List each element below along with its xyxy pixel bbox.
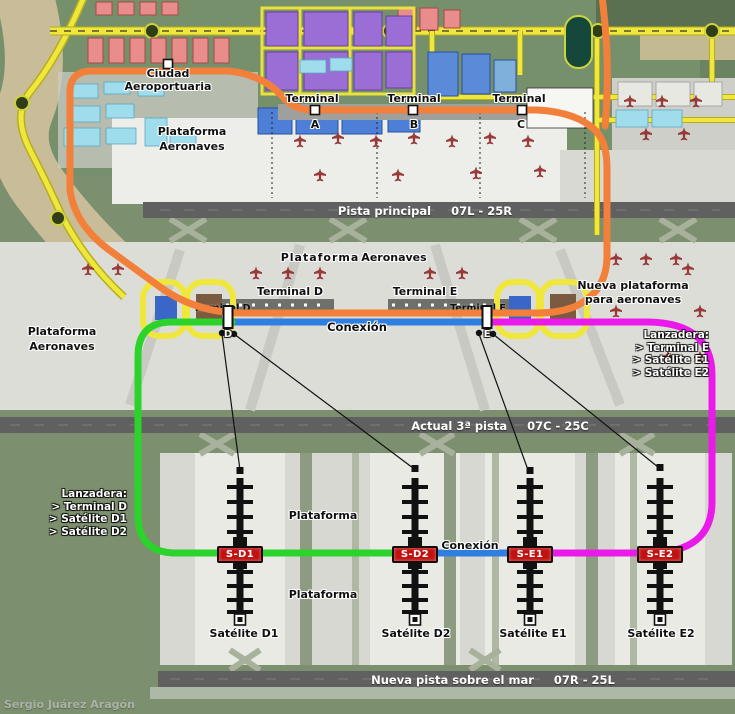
- satelite-e1-label: Satélite E1: [499, 627, 566, 640]
- lanzadera-right-label: Lanzadera: > Terminal E > Satélite E1 > …: [632, 329, 709, 379]
- ciudad-line2: Aeroportuaria: [125, 80, 212, 93]
- runway-3-name: Nueva pista sobre el mar: [371, 673, 534, 687]
- terminal-b-letter: B: [410, 118, 418, 131]
- apron-abc-label: Plataforma Aeronaves: [158, 124, 227, 154]
- apron-abc-line1: Plataforma: [158, 124, 227, 139]
- nueva-plataforma-label: Nueva plataforma para aeronaves: [577, 279, 688, 307]
- runway-1-name: Pista principal: [338, 204, 431, 218]
- runway-2-name: Actual 3ª pista: [411, 419, 507, 433]
- runway-1-label: Pista principal 07L - 25R: [338, 204, 512, 218]
- lanzadera-right-item2: > Satélite E1: [632, 354, 709, 367]
- terminal-d-label: Terminal D: [257, 285, 323, 298]
- nueva-plataforma-line2: para aeronaves: [577, 293, 688, 307]
- terminal-a-letter: A: [311, 118, 320, 131]
- lanzadera-right-item1: > Terminal E: [632, 342, 709, 355]
- lanzadera-left-item2: > Satélite D1: [49, 513, 127, 526]
- lanzadera-left-item3: > Satélite D2: [49, 526, 127, 539]
- satellite-connectors: [222, 334, 658, 470]
- badge-s-d1: S-D1: [217, 546, 263, 563]
- airport-plan-map: Terminal D Terminal E: [0, 0, 735, 714]
- conexion-bottom-label: Conexión: [441, 539, 498, 552]
- apron-abc-line2: Aeronaves: [158, 139, 227, 154]
- mid-aeronaves-label: Aeronaves: [361, 251, 426, 264]
- ciudad-line1: Ciudad: [125, 67, 212, 80]
- nueva-plataforma-line1: Nueva plataforma: [577, 279, 688, 293]
- runway-2-label: Actual 3ª pista 07C - 25C: [411, 419, 589, 433]
- terminal-c-letter: C: [517, 118, 525, 131]
- terminal-e-label: Terminal E: [393, 285, 458, 298]
- terminal-a-label: Terminal: [285, 92, 338, 105]
- satelite-e2-label: Satélite E2: [627, 627, 694, 640]
- satelite-d2-label: Satélite D2: [382, 627, 451, 640]
- runway-3-designation: 07R - 25L: [554, 673, 615, 687]
- badge-s-e1: S-E1: [507, 546, 553, 563]
- author-credit: Sergio Juárez Aragón: [4, 698, 135, 711]
- station-e-letter: E: [484, 329, 491, 340]
- badge-s-d2: S-D2: [392, 546, 438, 563]
- satelite-d1-label: Satélite D1: [210, 627, 279, 640]
- route-overlay: [0, 0, 735, 714]
- terminal-c-label: Terminal: [492, 92, 545, 105]
- route-green-lanzadera-d: [138, 322, 416, 553]
- runway-3-label: Nueva pista sobre el mar 07R - 25L: [371, 673, 615, 687]
- lanzadera-right-item3: > Satélite E2: [632, 367, 709, 380]
- lanzadera-right-title: Lanzadera:: [632, 329, 709, 342]
- badge-s-e2: S-E2: [637, 546, 683, 563]
- pier-top-markers: [237, 464, 664, 474]
- satellite-plataforma-top-label: Plataforma: [289, 509, 358, 522]
- apron-left-line2: Aeronaves: [28, 339, 97, 354]
- runway-1-designation: 07L - 25R: [451, 204, 512, 218]
- satellite-plataforma-bottom-label: Plataforma: [289, 588, 358, 601]
- pier-bottom-markers: [235, 614, 666, 625]
- apron-left-line1: Plataforma: [28, 324, 97, 339]
- station-d-letter: D: [224, 329, 232, 340]
- terminal-b-label: Terminal: [387, 92, 440, 105]
- route-orange: [70, 0, 607, 313]
- ciudad-aeroportuaria-label: Ciudad Aeroportuaria: [125, 67, 212, 93]
- route-blue-conexion: [234, 322, 530, 553]
- apron-left-label: Plataforma Aeronaves: [28, 324, 97, 354]
- conexion-top-label: Conexión: [327, 320, 387, 334]
- lanzadera-left-item1: > Terminal D: [49, 501, 127, 514]
- runway-2-designation: 07C - 25C: [527, 419, 589, 433]
- lanzadera-left-title: Lanzadera:: [49, 488, 127, 501]
- lanzadera-left-label: Lanzadera: > Terminal D > Satélite D1 > …: [49, 488, 127, 538]
- mid-plataforma-label: Plataforma: [281, 251, 360, 264]
